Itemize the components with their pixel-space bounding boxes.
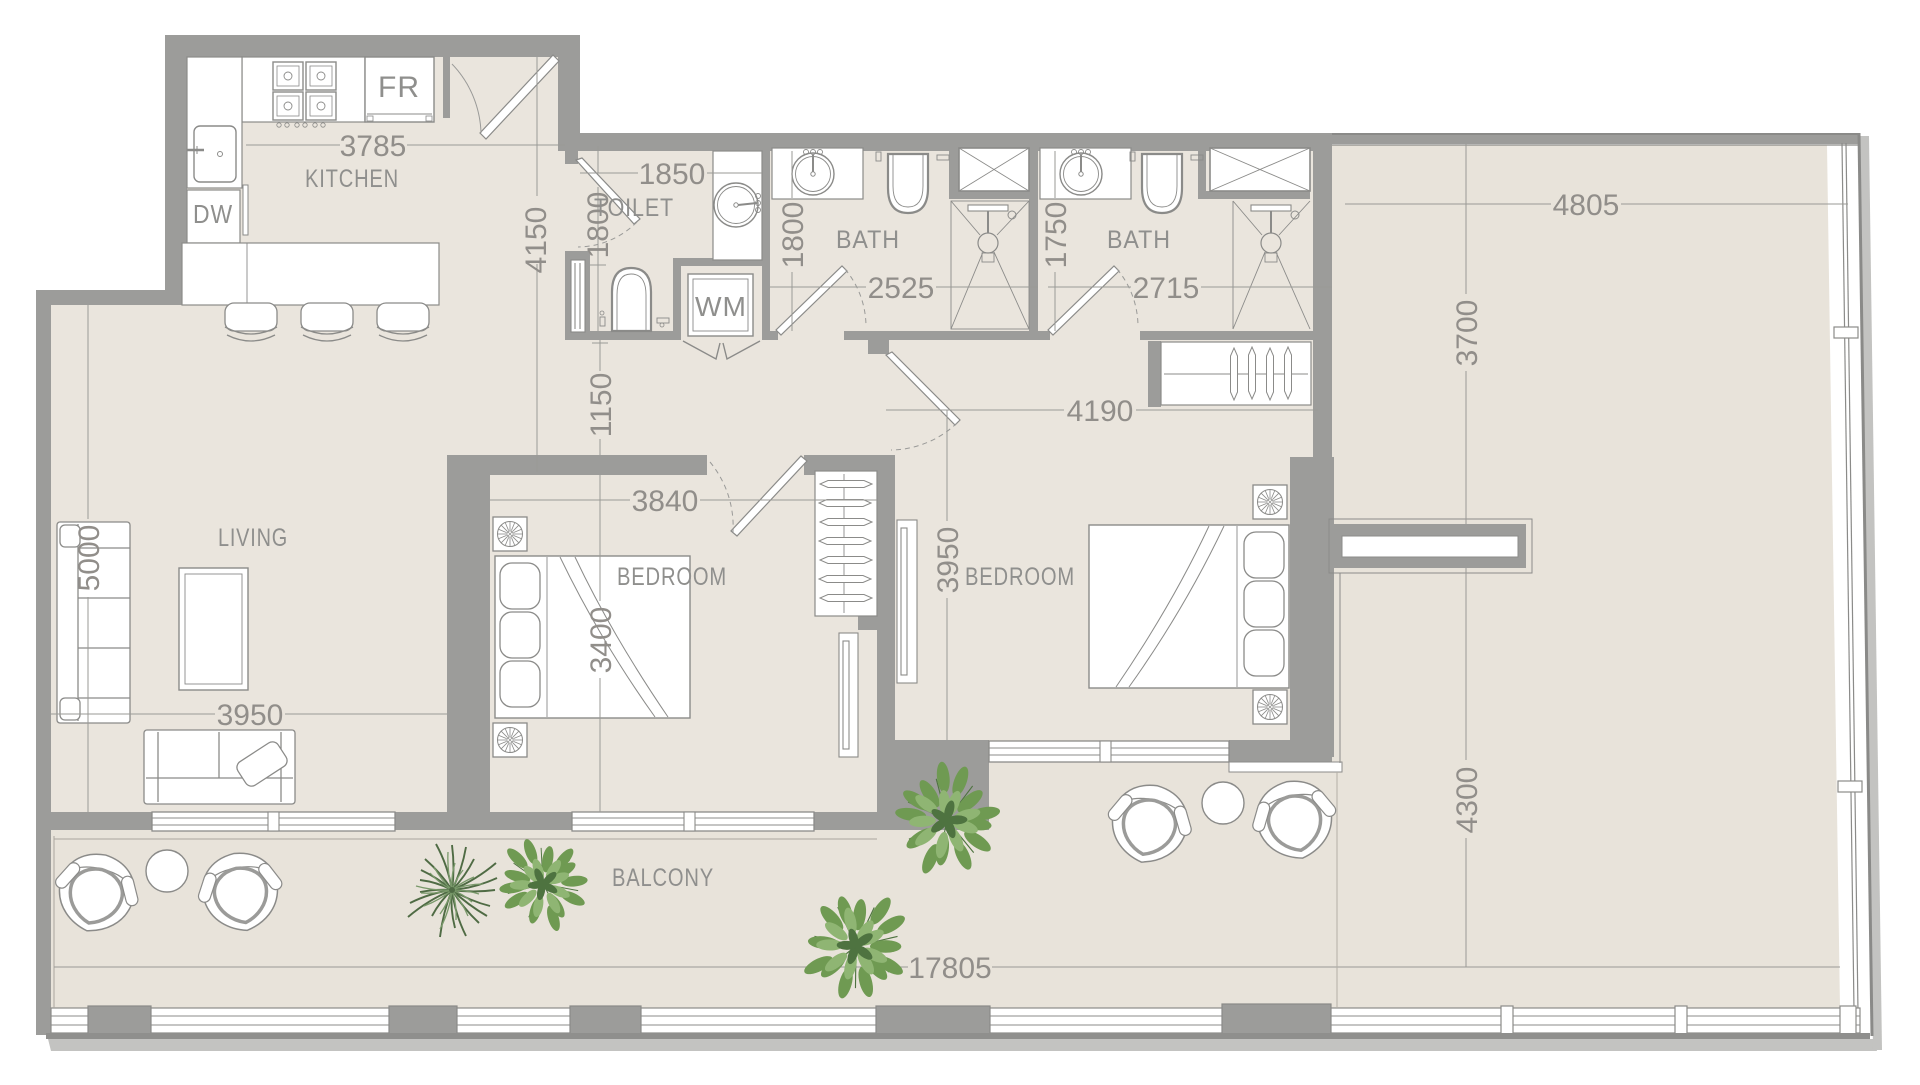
svg-text:3950: 3950: [217, 699, 284, 732]
svg-text:2525: 2525: [868, 272, 935, 305]
svg-text:3785: 3785: [340, 130, 407, 163]
svg-text:4190: 4190: [1067, 395, 1134, 428]
svg-text:WM: WM: [695, 291, 747, 322]
svg-text:BALCONY: BALCONY: [612, 864, 714, 892]
svg-text:FR: FR: [378, 71, 420, 104]
svg-text:KITCHEN: KITCHEN: [305, 165, 399, 193]
svg-text:BEDROOM: BEDROOM: [965, 563, 1075, 591]
svg-text:1850: 1850: [639, 158, 706, 191]
svg-text:1800: 1800: [777, 202, 810, 269]
svg-text:3840: 3840: [632, 485, 699, 518]
svg-text:5000: 5000: [73, 525, 106, 592]
svg-text:17805: 17805: [908, 952, 991, 985]
svg-text:BATH: BATH: [836, 226, 900, 254]
svg-text:1150: 1150: [585, 373, 618, 438]
svg-text:3400: 3400: [585, 607, 618, 674]
svg-text:TOILET: TOILET: [594, 194, 674, 222]
svg-text:3950: 3950: [932, 527, 965, 594]
svg-text:4150: 4150: [520, 207, 553, 274]
svg-text:2715: 2715: [1133, 272, 1200, 305]
svg-text:DW: DW: [193, 199, 233, 229]
svg-text:BEDROOM: BEDROOM: [617, 563, 727, 591]
svg-text:BATH: BATH: [1107, 226, 1171, 254]
svg-text:LIVING: LIVING: [218, 524, 288, 552]
svg-text:3700: 3700: [1451, 300, 1484, 367]
svg-text:4805: 4805: [1553, 189, 1620, 222]
svg-text:4300: 4300: [1451, 767, 1484, 834]
svg-text:1750: 1750: [1040, 202, 1073, 269]
